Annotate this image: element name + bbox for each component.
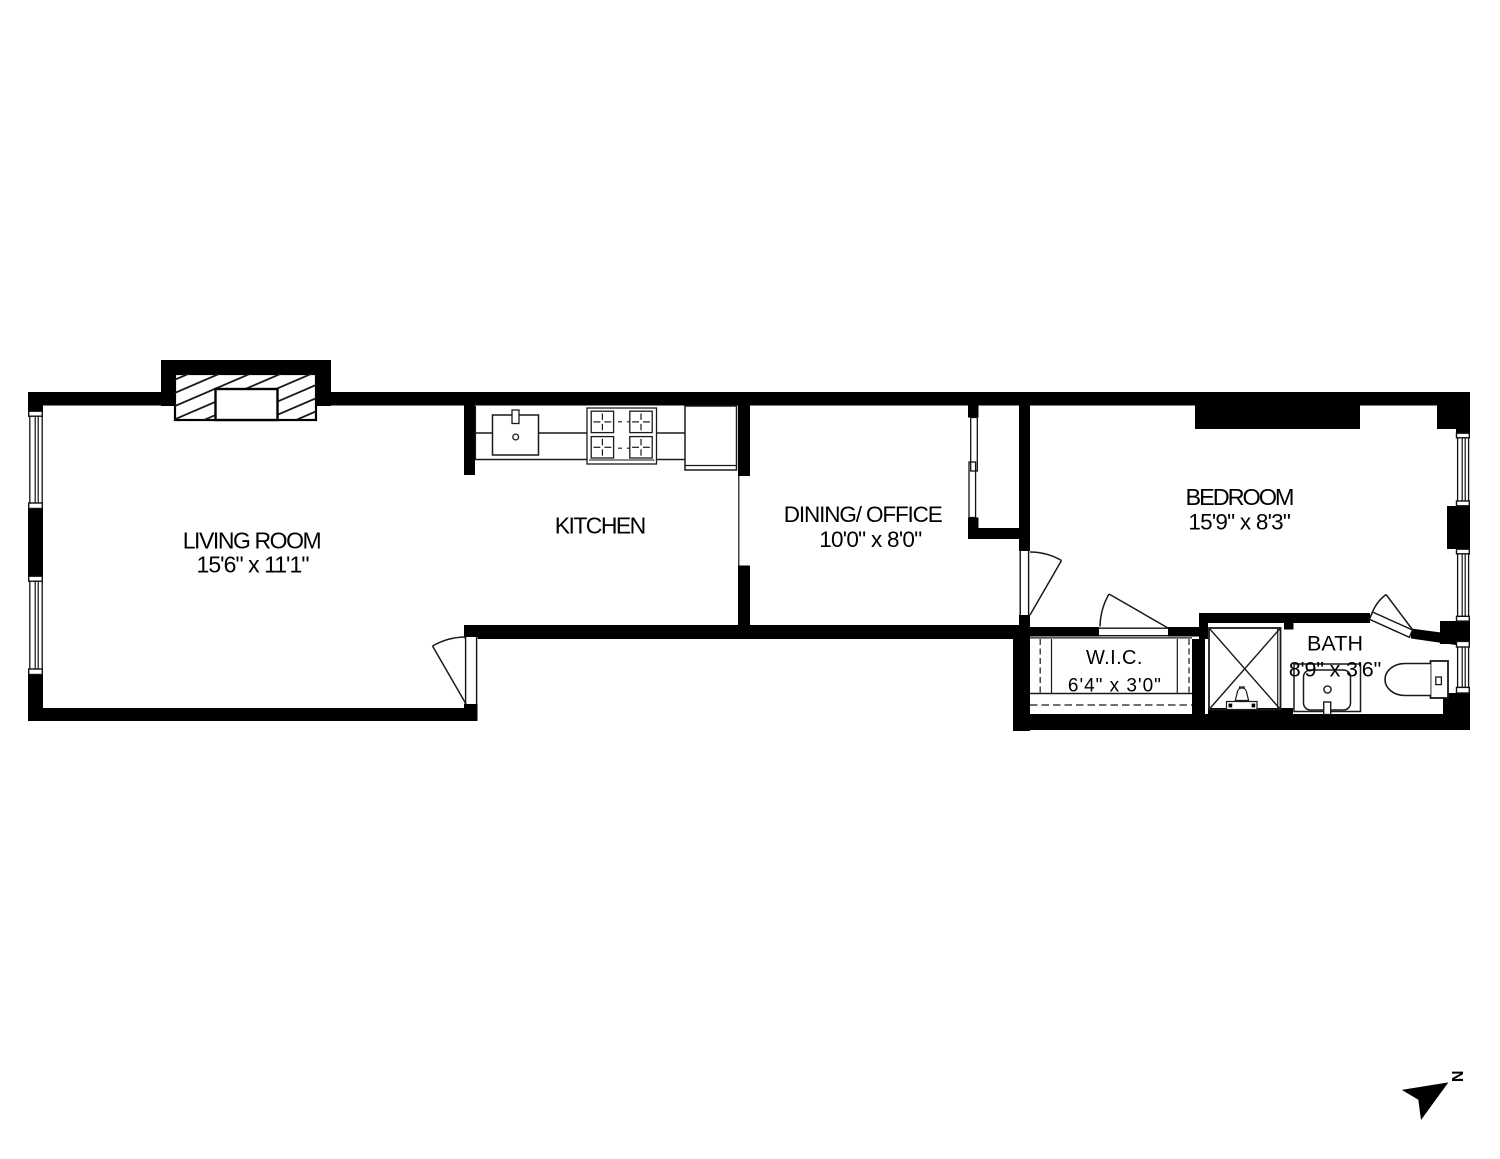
svg-text:LIVING ROOM: LIVING ROOM <box>183 528 322 554</box>
svg-text:BATH: BATH <box>1307 632 1363 656</box>
svg-text:15'6" x 11'1": 15'6" x 11'1" <box>197 552 310 578</box>
svg-text:15'9" x 8'3": 15'9" x 8'3" <box>1188 510 1291 535</box>
svg-text:BEDROOM: BEDROOM <box>1186 484 1295 510</box>
svg-text:N: N <box>1448 1071 1465 1083</box>
svg-text:10'0" x 8'0": 10'0" x 8'0" <box>819 527 922 552</box>
svg-text:KITCHEN: KITCHEN <box>555 513 647 539</box>
svg-text:8'9" x 3'6": 8'9" x 3'6" <box>1289 658 1382 682</box>
svg-text:W.I.C.: W.I.C. <box>1086 647 1143 669</box>
svg-text:6'4" x 3'0": 6'4" x 3'0" <box>1068 675 1161 696</box>
svg-text:DINING/ OFFICE: DINING/ OFFICE <box>784 502 943 527</box>
